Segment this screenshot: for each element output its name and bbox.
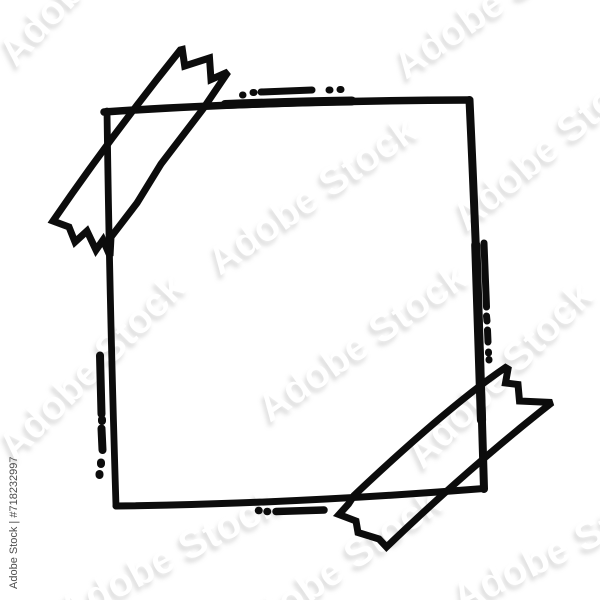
svg-text:Adobe Stock | #718232997: Adobe Stock | #718232997 — [8, 456, 20, 589]
